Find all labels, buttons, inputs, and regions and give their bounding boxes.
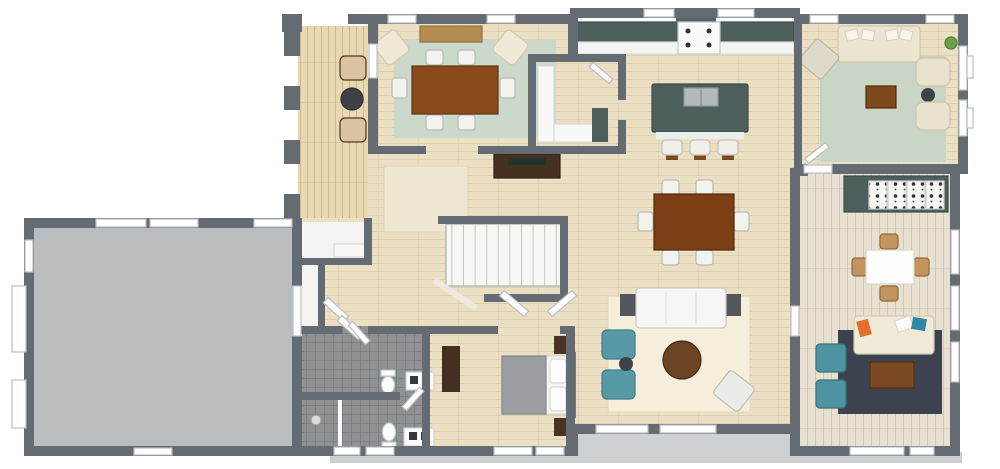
sitting-coffee-table (866, 86, 896, 108)
porch-side-table (341, 88, 363, 110)
bedroom-dresser (442, 346, 460, 392)
window-sitting-right-1 (959, 46, 967, 90)
wall-dining-south-b (478, 146, 626, 154)
family-sofa (636, 288, 726, 328)
console-decor (508, 158, 546, 165)
window-family-1 (596, 425, 648, 433)
grill-module-1 (869, 181, 887, 209)
dining-chair-w (392, 78, 407, 98)
dining-chair-s1 (426, 115, 443, 130)
wall-stairs-right (560, 224, 568, 302)
threshold-garage-bottom (134, 448, 172, 455)
window-sitting-1 (810, 15, 838, 23)
wall-pantry-left (528, 62, 536, 150)
wall-garage-bottom (24, 446, 330, 456)
stairs (446, 224, 562, 286)
stove-burner-1 (686, 29, 691, 34)
wall-top-dining (348, 14, 572, 24)
wall-hall-bath-b (368, 326, 498, 334)
breakfast-chair-e (734, 212, 749, 231)
outdoor-pillow-teal (911, 317, 927, 331)
wall-closet-a-east (364, 218, 372, 265)
patio-apron-family (578, 434, 800, 452)
wall-dining-kitchen-divider (568, 14, 578, 60)
window-deck-right-1 (951, 230, 959, 274)
wall-dining-south-a (368, 146, 426, 154)
door-great-deck (791, 306, 799, 336)
window-garage-left-1 (25, 240, 33, 272)
window-sitting-2 (926, 15, 954, 23)
breakfast-chair-n1 (662, 180, 679, 195)
porch-pier-3 (284, 140, 300, 164)
porch-pier-4 (284, 194, 300, 218)
stove-burner-4 (707, 43, 712, 48)
breakfast-table (654, 194, 734, 250)
grill-module-2 (888, 181, 906, 209)
wall-closet-a-south (298, 258, 370, 265)
family-armchair-1 (602, 330, 635, 359)
wall-dining-west-a (368, 14, 378, 44)
breakfast-chair-s1 (662, 250, 679, 265)
wall-great-east-a (790, 168, 800, 306)
wall-great-east-b (790, 336, 800, 456)
floorplan-page (0, 0, 1000, 469)
mudroom-bench (334, 244, 366, 257)
wall-pantry-right-a (618, 62, 626, 100)
porch-pier-2 (284, 86, 300, 110)
grill-module-4 (926, 181, 944, 209)
dining-table (412, 66, 498, 114)
outdoor-coffee-table (870, 362, 914, 388)
shower-head (311, 415, 321, 425)
garage-floor (34, 228, 294, 450)
outdoor-armchair-1 (816, 344, 846, 372)
outdoor-dining-table (866, 250, 914, 284)
bed-pillow-1 (550, 359, 566, 383)
wall-top-kitchen (570, 8, 800, 18)
door-garage-top (254, 219, 292, 227)
wall-closet-b-east (318, 265, 325, 326)
bath-bottom-toilet (383, 423, 396, 441)
potted-plant (945, 37, 957, 49)
window-garage-bay-2 (12, 380, 26, 428)
outdoor-armchair-2 (816, 380, 846, 408)
window-bath-2 (366, 447, 394, 455)
door-garage-mudroom (293, 286, 301, 336)
wall-pantry-right-b (618, 120, 626, 146)
window-sill-bump-1 (967, 56, 973, 78)
console-table (494, 154, 560, 178)
wall-stairs-bottom (484, 294, 568, 302)
window-sill-bump-2 (967, 108, 973, 128)
outdoor-chair-s (880, 286, 898, 301)
outdoor-chair-e (914, 258, 929, 276)
porch-corner-pier (282, 14, 302, 32)
window-bedroom-1 (494, 447, 532, 455)
window-kitchen-2 (718, 9, 754, 17)
wall-stairs-top (438, 216, 568, 224)
sitting-side-table (921, 88, 935, 102)
floorplan-canvas (0, 0, 1000, 469)
wall-dining-west-b (368, 78, 378, 148)
window-bath-1 (334, 447, 360, 455)
window-dining-1 (388, 15, 416, 23)
sitting-armchair-1 (916, 58, 950, 86)
grill-module-3 (907, 181, 925, 209)
dining-sideboard (420, 26, 482, 42)
outdoor-chair-n (880, 234, 898, 249)
window-garage-bay-1 (12, 286, 26, 352)
wall-house-west-a (292, 218, 302, 286)
window-garage-top-2 (150, 219, 198, 227)
stove (678, 22, 720, 54)
bar-stool-2 (690, 140, 710, 155)
dining-chair-e (500, 78, 515, 98)
bar-stool-1 (662, 140, 682, 155)
window-sitting-right-2 (959, 100, 967, 136)
family-side-table-left (620, 294, 637, 316)
wall-bedroom-east (566, 326, 575, 452)
bed-pillow-2 (550, 387, 566, 411)
sitting-armchair-2 (916, 102, 950, 130)
dining-chair-n1 (426, 50, 443, 65)
island-base (656, 132, 744, 139)
window-deck-right-2 (951, 286, 959, 330)
stove-burner-2 (707, 29, 712, 34)
wall-sitting-bottom (832, 164, 968, 174)
bar-stool-3 (718, 140, 738, 155)
dining-chair-n2 (458, 50, 475, 65)
window-family-2 (660, 425, 716, 433)
door-sitting-gap (804, 165, 832, 173)
porch-armchair-2 (340, 118, 366, 142)
sitting-sofa-pillow-3 (885, 29, 899, 41)
window-bedroom-2 (536, 447, 564, 455)
bath-bottom-sink-1 (409, 432, 417, 440)
bath-top-sink-1 (410, 376, 418, 384)
wall-house-west-b (292, 336, 302, 456)
bath-top-toilet (382, 377, 395, 394)
stove-burner-3 (686, 43, 691, 48)
window-deck-right-3 (951, 342, 959, 382)
door-dining-porch (369, 44, 377, 78)
wall-baths-divider (298, 392, 400, 400)
wall-pantry-top (528, 54, 626, 62)
dining-chair-s2 (458, 115, 475, 130)
window-deck-south (910, 447, 934, 455)
breakfast-chair-n2 (696, 180, 713, 195)
sitting-sofa-pillow-2 (861, 29, 875, 41)
porch-pier-1 (284, 32, 300, 56)
window-kitchen-1 (644, 9, 674, 17)
family-side-round-table (619, 357, 633, 371)
window-dining-2 (487, 15, 515, 23)
breakfast-chair-s2 (696, 250, 713, 265)
bed-blanket (502, 356, 546, 414)
bath-top-toilet-tank (381, 370, 395, 376)
wall-hall-bath-a (298, 326, 342, 334)
family-armchair-2 (602, 370, 635, 399)
breakfast-chair-w (638, 212, 653, 231)
pantry-counter-left (538, 66, 554, 142)
outdoor-chair-w (852, 258, 867, 276)
pantry-counter-teal (592, 108, 608, 142)
wall-kitchen-sitting-divider (794, 14, 802, 168)
window-garage-top-1 (96, 219, 146, 227)
family-coffee-table (663, 341, 701, 379)
door-deck-south (850, 447, 904, 455)
porch-armchair-1 (340, 56, 366, 80)
